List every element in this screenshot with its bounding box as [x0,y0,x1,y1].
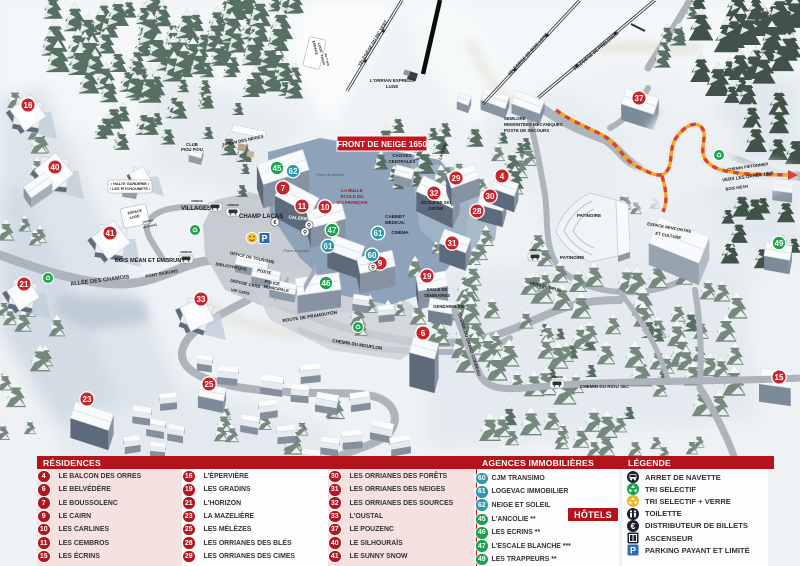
svg-text:P: P [630,546,636,556]
svg-text:€: € [631,521,636,531]
svg-text:ANNEXE: ANNEXE [180,250,192,254]
svg-text:ANNEXE: ANNEXE [551,375,563,379]
svg-text:⚲: ⚲ [303,229,307,236]
svg-text:BOIS MÉAN ET EMBRUN: BOIS MÉAN ET EMBRUN [115,256,182,264]
svg-text:CHEMIN DU RIOU SEC: CHEMIN DU RIOU SEC [580,384,630,389]
svg-text:9: 9 [378,259,383,268]
svg-text:CAISSES: CAISSES [392,153,411,158]
svg-text:⚲: ⚲ [371,264,375,271]
svg-text:16: 16 [24,101,33,110]
svg-text:Place du festival: Place du festival [316,173,344,177]
svg-text:P: P [261,234,267,244]
svg-text:49: 49 [775,239,784,248]
svg-text:19: 19 [423,272,432,281]
svg-text:GENDARMERIE: GENDARMERIE [433,304,465,309]
svg-text:PATINOIRE: PATINOIRE [577,213,601,218]
svg-text:7: 7 [281,184,286,193]
svg-text:CHAMP LACAS: CHAMP LACAS [239,214,283,220]
svg-text:45: 45 [273,164,282,173]
svg-text:21: 21 [20,280,29,289]
svg-text:ÉCOLE DE SKI: ÉCOLE DE SKI [421,200,451,205]
svg-text:30: 30 [486,192,495,201]
svg-text:MÉDICAL: MÉDICAL [385,220,405,225]
svg-text:SKI FRANÇAIS: SKI FRANÇAIS [336,200,367,205]
svg-text:60: 60 [368,251,377,260]
svg-text:OZONE: OZONE [429,206,444,211]
svg-text:CINÉMA: CINÉMA [391,230,409,235]
svg-text:♻: ♻ [355,325,361,332]
svg-text:VILLAGES: VILLAGES [181,206,211,212]
svg-text:37: 37 [635,94,644,103]
svg-text:23: 23 [83,395,92,404]
svg-text:♻: ♻ [716,153,722,160]
svg-text:FRONT DE NEIGE 1650: FRONT DE NEIGE 1650 [337,140,428,149]
svg-text:€: € [273,220,276,226]
svg-text:4: 4 [500,172,505,181]
svg-text:CENTRALES: CENTRALES [389,159,416,164]
svg-text:L'ORRIAN EXPRESS: L'ORRIAN EXPRESS [370,78,414,83]
svg-text:25: 25 [205,380,214,389]
svg-text:POSTE DE SECOURS: POSTE DE SECOURS [504,128,549,133]
svg-text:29: 29 [452,174,461,183]
svg-text:♻: ♻ [192,228,198,235]
svg-text:10: 10 [321,203,330,212]
svg-text:6: 6 [421,329,426,338]
svg-text:46: 46 [322,279,331,288]
svg-text:31: 31 [448,239,457,248]
svg-text:32: 32 [430,189,439,198]
svg-text:40: 40 [51,163,60,172]
svg-text:47: 47 [328,226,337,235]
svg-text:28: 28 [473,207,482,216]
svg-text:15: 15 [775,373,784,382]
svg-text:62: 62 [289,167,298,176]
svg-text:ANNEXE: ANNEXE [529,248,541,252]
svg-text:CABINET: CABINET [385,214,405,219]
svg-text:⚲: ⚲ [307,222,311,229]
svg-text:61: 61 [374,229,383,238]
svg-text:Place d'accueil: Place d'accueil [283,249,308,253]
svg-text:SALLE DE: SALLE DE [427,287,448,292]
svg-text:PIOU PIOU: PIOU PIOU [181,147,203,152]
svg-text:ÉCOLE DU: ÉCOLE DU [341,194,364,199]
svg-text:PATINOIRE: PATINOIRE [560,255,584,260]
svg-text:• HALTE GARDERIE •: • HALTE GARDERIE • [111,182,150,186]
svg-text:61: 61 [324,242,333,251]
svg-text:11: 11 [298,202,307,211]
svg-text:ANNEXE: ANNEXE [227,203,239,207]
svg-text:LUGE: LUGE [386,84,399,89]
svg-text:41: 41 [106,229,115,238]
svg-text:SEMLORE: SEMLORE [504,116,526,121]
svg-text:REMONTÉES MÉCANIQUES: REMONTÉES MÉCANIQUES [504,122,563,127]
svg-text:SÉMINAIRES: SÉMINAIRES [424,293,450,298]
svg-text:33: 33 [197,295,206,304]
svg-text:LA BULLE: LA BULLE [341,188,363,193]
svg-text:ANNEXE: ANNEXE [191,199,203,203]
svg-text:♻: ♻ [45,276,51,283]
svg-text:• LES PITCHOUNETS •: • LES PITCHOUNETS • [110,187,151,191]
